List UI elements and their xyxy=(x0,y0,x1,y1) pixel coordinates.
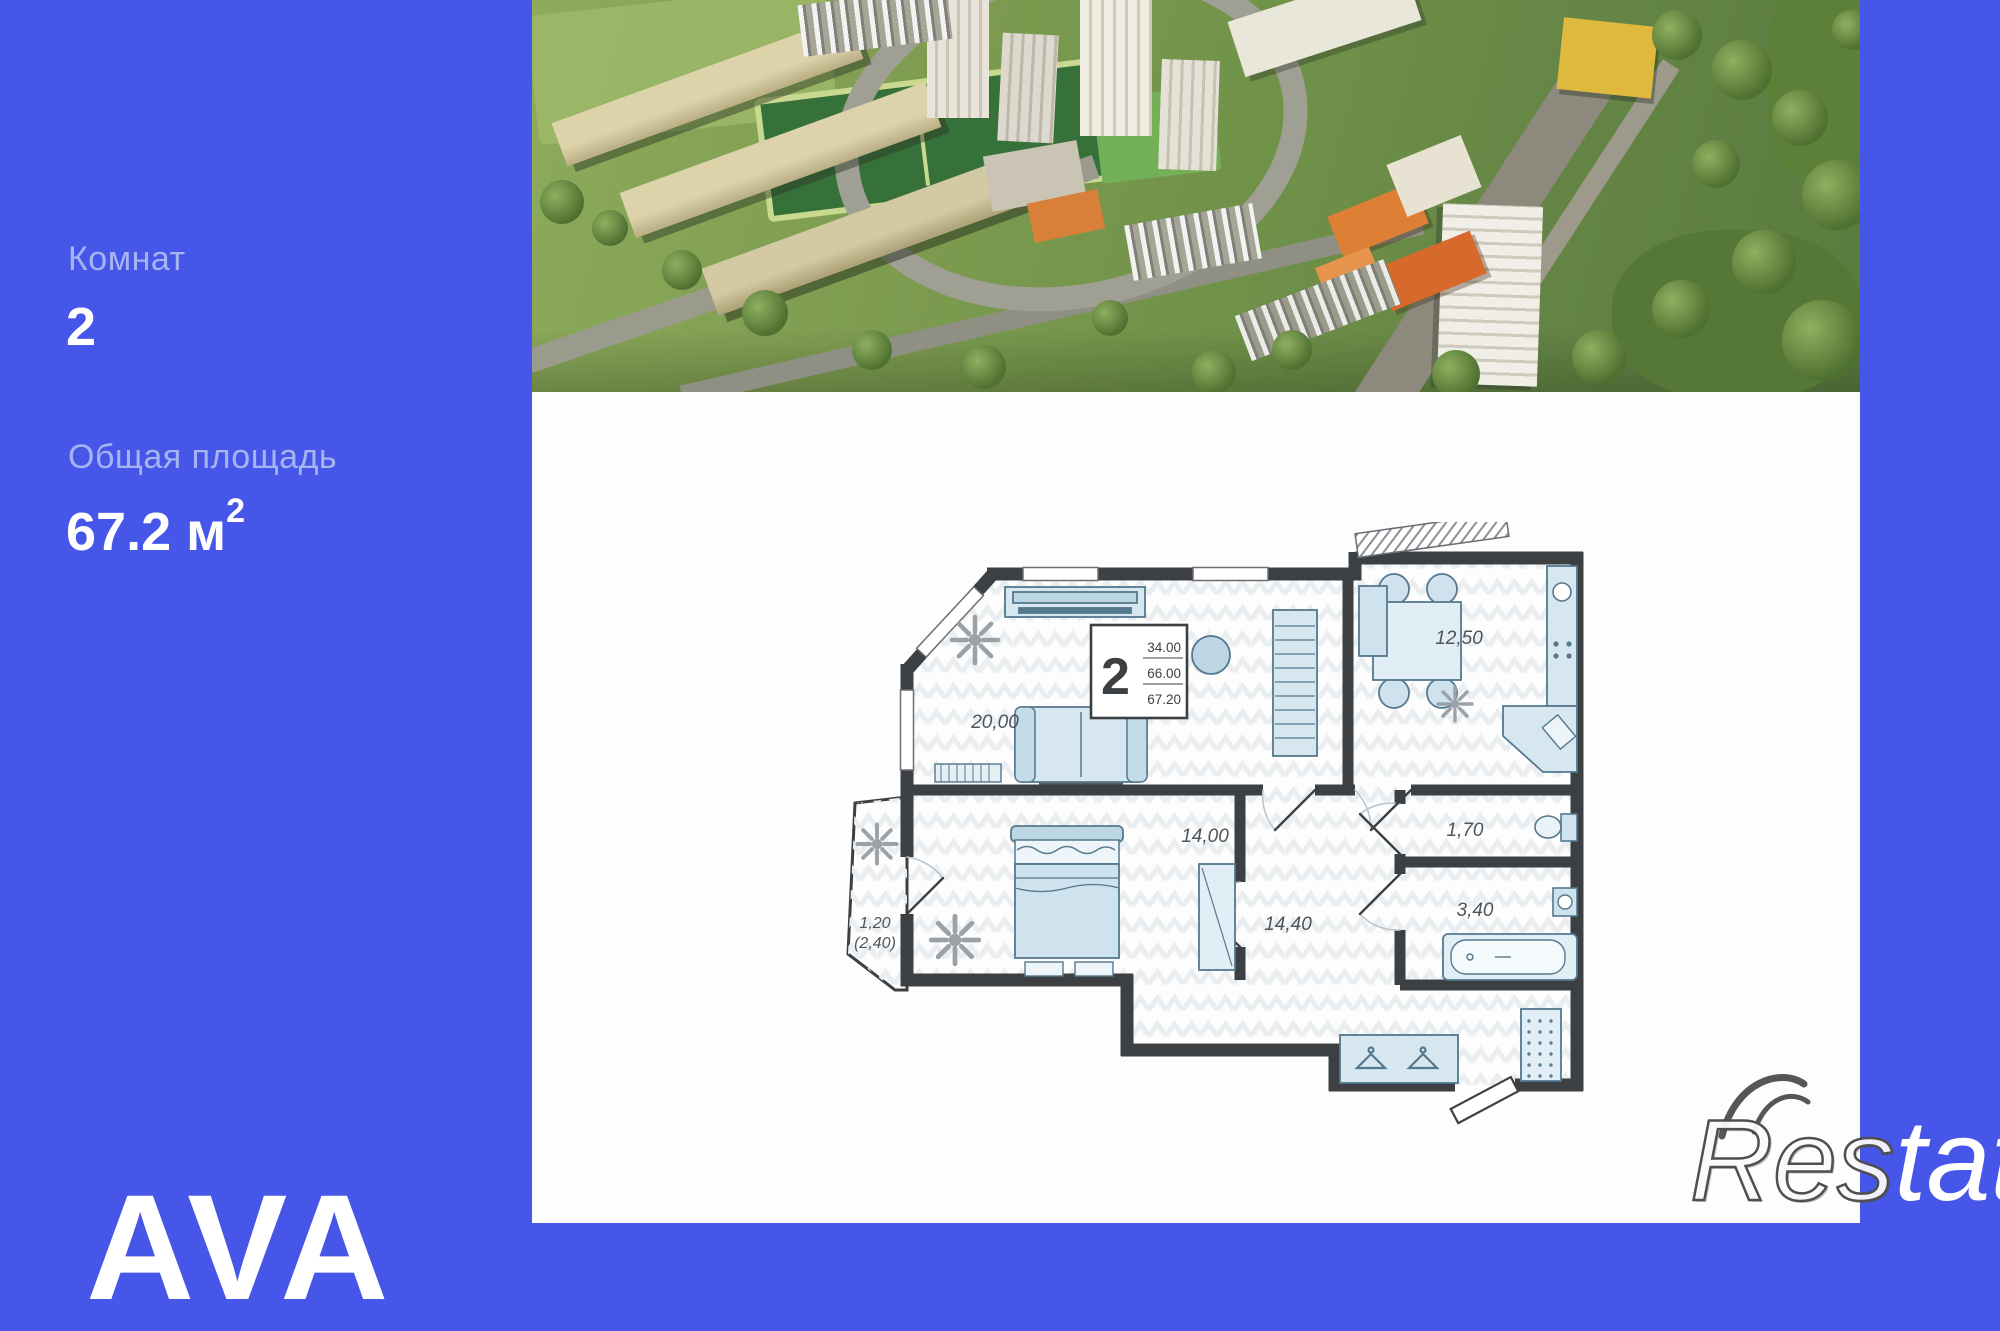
tree xyxy=(1192,350,1236,392)
building-slab xyxy=(1228,0,1422,77)
aerial-render-photo xyxy=(532,0,1860,392)
tree xyxy=(1652,10,1702,60)
watermark-tate: tate xyxy=(1895,1097,2000,1225)
tree xyxy=(1092,300,1128,336)
shoe-cabinet xyxy=(1521,1009,1561,1081)
tree xyxy=(1772,90,1828,146)
tree xyxy=(1272,330,1312,370)
tree xyxy=(1732,230,1796,294)
room-label-balcony-2: (2,40) xyxy=(854,935,896,952)
wardrobe-mirror xyxy=(1199,864,1235,970)
bed xyxy=(1011,826,1123,976)
stamp-rooms: 2 xyxy=(1101,648,1130,706)
rooms-label: Комнат xyxy=(68,240,186,279)
tree xyxy=(1572,330,1626,384)
plant-icon xyxy=(952,617,998,663)
plant-icon xyxy=(1438,687,1472,721)
watermark-res: Res xyxy=(1690,1097,1895,1225)
room-label-bedroom: 14,00 xyxy=(1181,826,1229,847)
tower xyxy=(997,33,1059,144)
area-unit: м xyxy=(171,502,226,562)
fridge xyxy=(1359,586,1387,656)
listing-card: { "listing": { "rooms_label": "Комнат", … xyxy=(0,0,2000,1223)
stamp-total-area: 67.20 xyxy=(1147,692,1181,707)
plant-icon xyxy=(931,916,979,964)
room-label-hall: 14,40 xyxy=(1264,914,1312,935)
entry-wardrobe xyxy=(1340,1035,1458,1083)
tree xyxy=(1802,160,1860,230)
tv-unit xyxy=(1005,587,1145,617)
tree xyxy=(962,345,1006,389)
room-label-balcony-1: 1,20 xyxy=(859,915,890,932)
tree xyxy=(662,250,702,290)
pouf xyxy=(1192,636,1230,674)
bathroom-sink xyxy=(1553,888,1577,916)
room-label-kitchen: 12,50 xyxy=(1435,628,1483,649)
total-area-label: Общая площадь xyxy=(68,438,337,477)
area-superscript: 2 xyxy=(226,492,245,530)
tower xyxy=(1080,0,1152,136)
ava-logo: AVA xyxy=(86,1172,392,1322)
tree xyxy=(852,330,892,370)
restate-watermark: Restate xyxy=(1690,1104,2000,1219)
area-number: 67.2 xyxy=(66,502,171,562)
room-label-living: 20,00 xyxy=(970,712,1019,733)
stamp-living-area: 34.00 xyxy=(1147,640,1181,655)
rooms-value: 2 xyxy=(66,296,96,358)
tree xyxy=(742,290,788,336)
shelving-unit xyxy=(1273,610,1317,756)
bathtub xyxy=(1443,934,1577,980)
plant-icon xyxy=(857,824,896,863)
total-area-value: 67.2 м2 xyxy=(66,492,245,563)
tree xyxy=(1712,40,1772,100)
tree xyxy=(592,210,628,246)
floor-plan: 2 34.00 66.00 67.20 xyxy=(823,522,1603,1142)
radiator xyxy=(935,764,1001,782)
tree xyxy=(1652,280,1710,338)
tree xyxy=(1692,140,1740,188)
area-stamp: 2 34.00 66.00 67.20 xyxy=(1091,625,1187,718)
stamp-area: 66.00 xyxy=(1147,666,1181,681)
yellow-building xyxy=(1556,17,1658,99)
room-label-bath: 3,40 xyxy=(1457,900,1494,921)
tree xyxy=(540,180,584,224)
room-label-wc: 1,70 xyxy=(1447,820,1484,841)
tower xyxy=(1158,59,1220,171)
tree xyxy=(1432,350,1480,392)
tree xyxy=(1782,300,1860,380)
